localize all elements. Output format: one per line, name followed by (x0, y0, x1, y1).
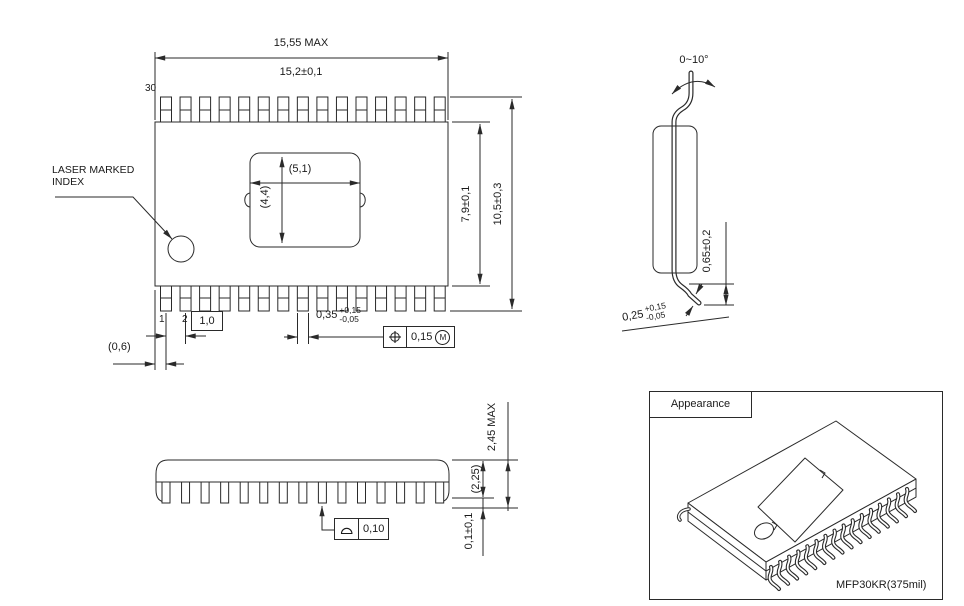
dim-lead-span: 10,5±0,3 (492, 172, 506, 236)
dim-lead-width: 0,35 +0,15 -0,05 (316, 306, 361, 324)
package-name-label: MFP30KR(375mil) (836, 579, 926, 592)
profile-of-surface-icon (335, 519, 358, 539)
flatness-tolerance-value: 0,10 (358, 519, 388, 539)
appearance-panel (649, 391, 943, 600)
top-pin-row (161, 97, 446, 122)
drawing-sheet: 15,55 MAX 15,2±0,1 30 (5,1) (4,4) LASER … (0, 0, 964, 606)
appearance-title: Appearance (671, 398, 730, 411)
bottom-pin-row (161, 286, 446, 311)
lead-width-value: 0,35 (316, 309, 337, 321)
dim-pitch-value: 1,0 (199, 315, 214, 327)
position-icon (384, 327, 406, 347)
dim-edge-offset: (0,6) (108, 341, 131, 354)
laser-marked-index-note: LASER MARKED INDEX (52, 164, 134, 188)
dim-standoff: 0,1±0,1 (463, 499, 477, 563)
dim-overall-width: 15,55 MAX (246, 37, 356, 50)
dim-lead-height: 0,65±0,2 (701, 219, 715, 283)
laser-index-mark (168, 236, 194, 262)
side-pin-row (162, 482, 444, 503)
end-view-drawing (622, 73, 734, 331)
pin-2-label: 2 (182, 314, 188, 326)
dim-body-height: 7,9±0,1 (460, 172, 474, 236)
top-view-drawing (55, 52, 522, 370)
dim-pad-height: (4,4) (259, 165, 273, 229)
dim-pad-width: (5,1) (270, 163, 330, 176)
foot-thickness-value: 0,25 (621, 308, 644, 324)
lead-width-minus-tol: -0,05 (339, 315, 361, 324)
dim-total-height: 2,45 MAX (486, 395, 500, 459)
dim-body-width: 15,2±0,1 (246, 66, 356, 79)
position-tolerance-value: 0,15 (411, 331, 432, 343)
pin-1-label: 1 (159, 314, 165, 326)
dim-lead-angle: 0~10° (663, 54, 725, 67)
pin-30-label: 30 (145, 83, 156, 95)
position-tolerance-frame: 0,15 M (383, 326, 455, 348)
dim-pitch-box: 1,0 (191, 311, 223, 331)
mmc-icon: M (435, 330, 450, 345)
appearance-title-box: Appearance (649, 391, 752, 418)
flatness-tolerance-frame: 0,10 (334, 518, 389, 540)
